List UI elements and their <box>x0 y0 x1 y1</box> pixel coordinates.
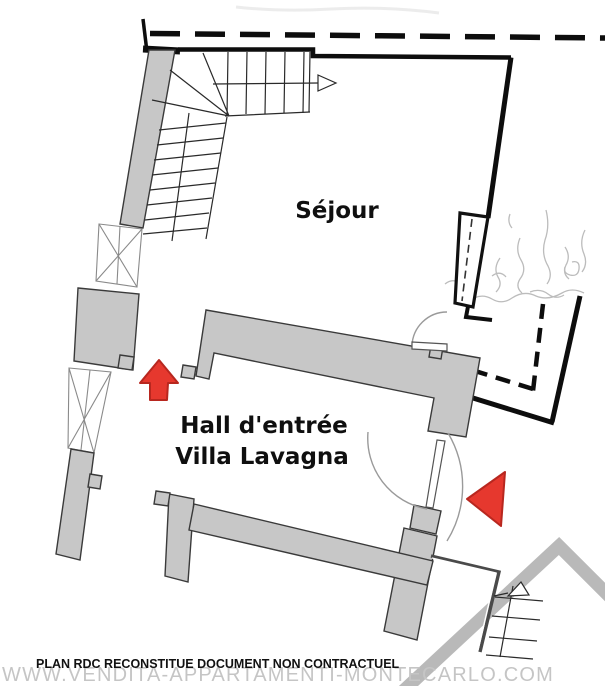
plan-caption: PLAN RDC RECONSTITUE DOCUMENT NON CONTRA… <box>36 657 400 671</box>
entrance-arrow-up-icon <box>140 360 178 400</box>
terrace-boundary-solid-bottom <box>460 394 554 423</box>
sejour-right-wall <box>488 58 511 219</box>
hall-label-line2: Villa Lavagna <box>175 444 349 470</box>
sejour-door-arc <box>412 312 447 346</box>
wall-stair-left <box>120 50 175 228</box>
stair-direction-line <box>213 83 318 84</box>
sejour-door-leaf <box>412 342 447 351</box>
hall-label-line1: Hall d'entrée <box>180 413 348 439</box>
hall-door-arc <box>368 432 427 509</box>
exterior-door-arc <box>447 433 463 541</box>
bay-window-upper <box>96 224 142 287</box>
wall-bottom-left-notch <box>154 491 170 506</box>
terrace-boundary-dashed-vertical <box>533 304 543 391</box>
wall-lower-left-strip <box>56 449 94 560</box>
bay-window-lower <box>68 368 111 453</box>
wall-mid-left-notch <box>118 355 134 370</box>
wall-hall-top-notch-left <box>181 365 196 379</box>
wall-lower-left-notch <box>88 474 102 489</box>
floor-plan-canvas: Séjour Hall d'entrée Villa Lavagna WWW.V… <box>0 0 605 686</box>
wall-bottom-left-column <box>165 494 194 582</box>
stair-direction-arrowhead-icon <box>318 75 336 91</box>
sejour-label: Séjour <box>295 198 379 224</box>
entrance-arrow-left-icon <box>467 472 505 526</box>
scan-artifact <box>236 7 439 13</box>
terrace-boundary-solid-vertical <box>552 296 580 422</box>
wall-right-column <box>384 528 437 640</box>
sejour-window <box>455 213 488 307</box>
floor-plan-drawing: Séjour Hall d'entrée Villa Lavagna WWW.V… <box>0 0 605 686</box>
wall-bottom-band <box>189 504 433 585</box>
property-line-dashed-top <box>150 34 605 39</box>
hall-door-leaf <box>426 440 445 508</box>
